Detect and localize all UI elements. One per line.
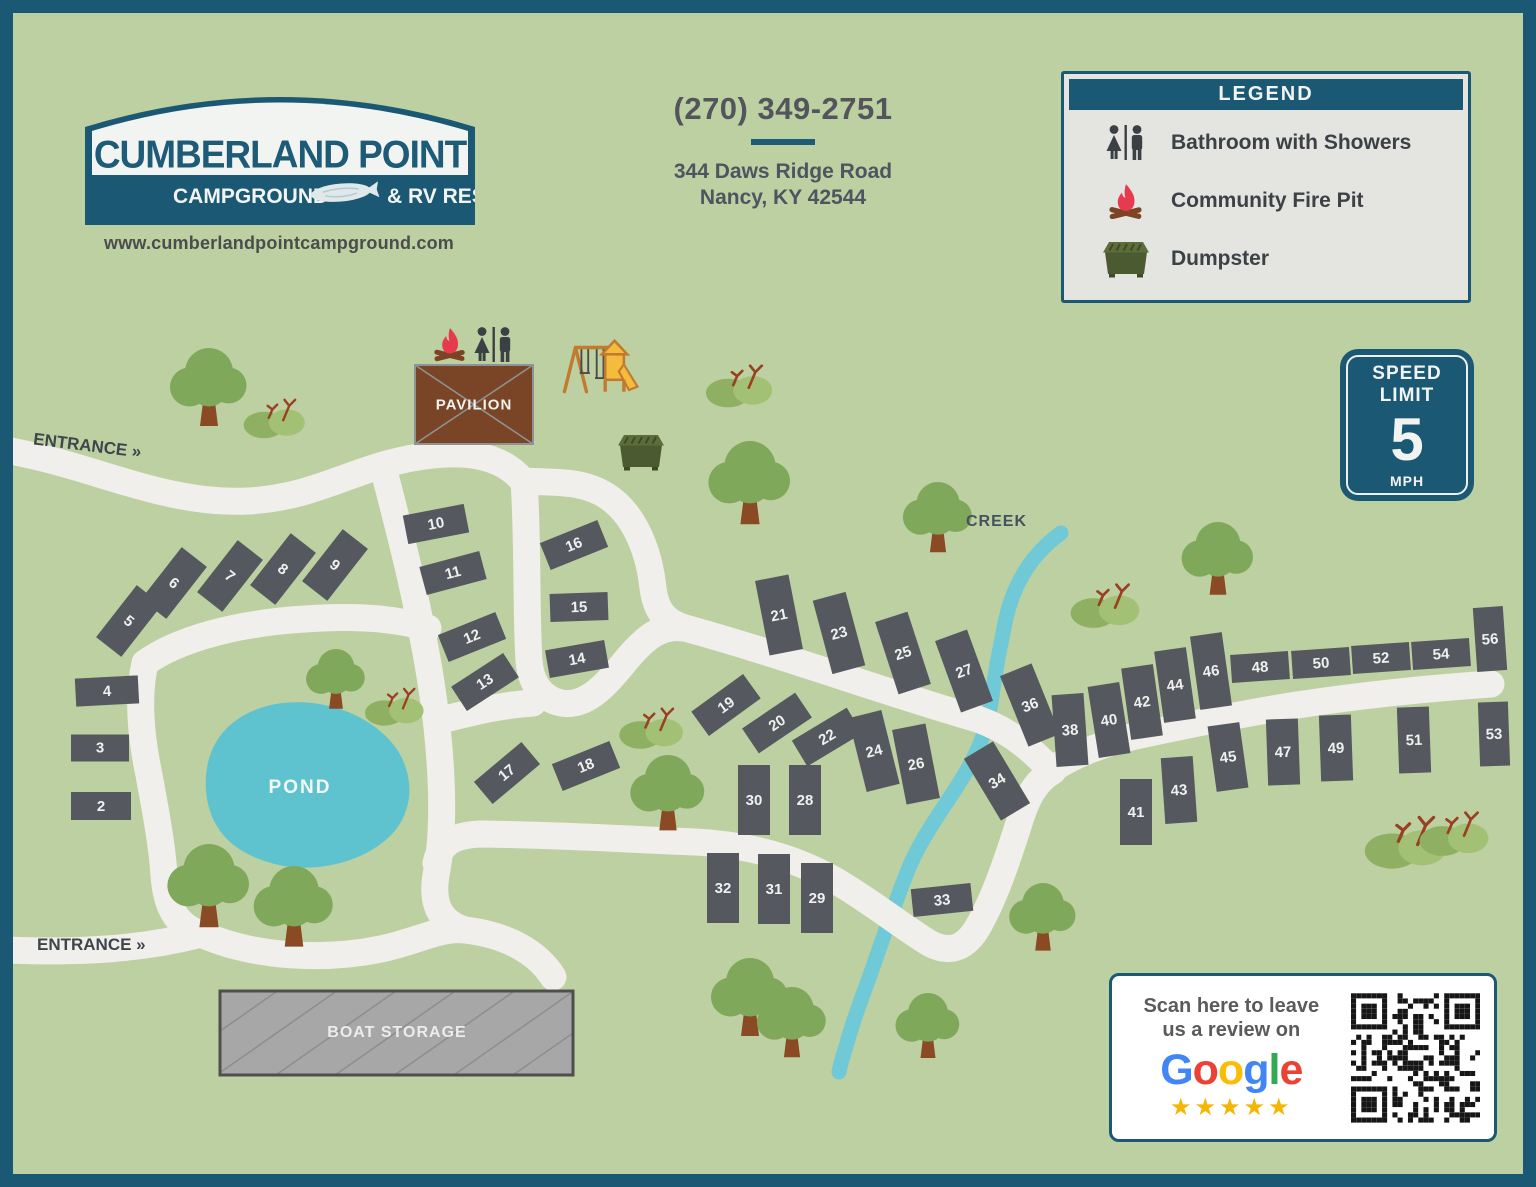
site-marker-31: 31 bbox=[758, 854, 790, 924]
site-marker-47: 47 bbox=[1266, 718, 1300, 785]
site-marker-51: 51 bbox=[1397, 706, 1431, 773]
website-url: www.cumberlandpointcampground.com bbox=[59, 233, 499, 254]
playground-icon bbox=[564, 341, 637, 392]
tree-icon bbox=[1009, 883, 1075, 951]
site-marker-4: 4 bbox=[75, 675, 139, 706]
bush-icon bbox=[365, 689, 424, 726]
tree-icon bbox=[170, 348, 247, 426]
site-marker-56: 56 bbox=[1473, 606, 1507, 672]
site-marker-52: 52 bbox=[1351, 642, 1411, 674]
review-text-line1: Scan here to leave bbox=[1126, 994, 1337, 1018]
google-logo: Google bbox=[1126, 1046, 1337, 1095]
legend-title: LEGEND bbox=[1069, 79, 1463, 110]
restroom-icon bbox=[475, 327, 511, 362]
boat-storage-label: BOAT STORAGE bbox=[327, 1024, 466, 1042]
review-text-line2: us a review on bbox=[1126, 1018, 1337, 1042]
site-marker-29: 29 bbox=[801, 863, 833, 933]
site-marker-30: 30 bbox=[738, 765, 770, 835]
tree-icon bbox=[896, 993, 960, 1058]
five-stars: ★★★★★ bbox=[1126, 1093, 1337, 1122]
pond-label: POND bbox=[269, 777, 332, 799]
legend-item-bathroom: Bathroom with Showers bbox=[1069, 118, 1463, 168]
address-line1: 344 Daws Ridge Road bbox=[613, 159, 953, 185]
creek-label: CREEK bbox=[966, 513, 1027, 531]
legend: LEGEND Bathroom with Showers Community F… bbox=[1061, 71, 1471, 303]
contact-block: (270) 349-2751 344 Daws Ridge Road Nancy… bbox=[613, 91, 953, 211]
restroom-icon bbox=[1095, 124, 1157, 162]
logo-title: CUMBERLAND POINT bbox=[94, 134, 467, 177]
dumpster-icon bbox=[618, 435, 664, 471]
speed-limit-value: 5 bbox=[1390, 409, 1423, 471]
divider bbox=[751, 139, 815, 145]
bush-icon bbox=[706, 366, 772, 408]
campground-map-poster: 2345678910111213141516171819202122232425… bbox=[0, 0, 1536, 1187]
legend-item-firepit: Community Fire Pit bbox=[1069, 176, 1463, 226]
logo: CUMBERLAND POINT CAMPGROUND & RV RESORT bbox=[85, 75, 475, 225]
tree-icon bbox=[903, 482, 972, 552]
site-marker-28: 28 bbox=[789, 765, 821, 835]
tree-icon bbox=[1182, 522, 1253, 595]
site-marker-15: 15 bbox=[550, 592, 609, 622]
site-marker-54: 54 bbox=[1411, 638, 1471, 670]
address-line2: Nancy, KY 42544 bbox=[613, 185, 953, 211]
tree-icon bbox=[254, 866, 333, 947]
site-marker-50: 50 bbox=[1291, 647, 1351, 679]
qr-code bbox=[1351, 991, 1480, 1125]
speed-limit-sign: SPEED LIMIT 5 MPH bbox=[1340, 349, 1474, 501]
site-marker-2: 2 bbox=[71, 792, 131, 820]
site-marker-41: 41 bbox=[1120, 779, 1152, 845]
bush-icon bbox=[1071, 585, 1140, 628]
legend-item-dumpster: Dumpster bbox=[1069, 234, 1463, 284]
phone-number: (270) 349-2751 bbox=[613, 91, 953, 127]
site-marker-43: 43 bbox=[1161, 756, 1198, 824]
site-marker-49: 49 bbox=[1319, 714, 1353, 781]
pavilion-label: PAVILION bbox=[436, 397, 513, 414]
logo-band-right: & RV RESORT bbox=[387, 185, 475, 208]
firepit-icon bbox=[1095, 183, 1157, 219]
site-marker-48: 48 bbox=[1230, 651, 1290, 683]
bush-icon bbox=[244, 400, 305, 438]
google-review-box: Scan here to leave us a review on Google… bbox=[1109, 973, 1497, 1142]
site-marker-53: 53 bbox=[1478, 701, 1510, 766]
site-marker-3: 3 bbox=[71, 735, 129, 762]
site-marker-32: 32 bbox=[707, 853, 739, 923]
tree-icon bbox=[306, 649, 365, 709]
site-marker-38: 38 bbox=[1052, 693, 1089, 767]
entrance-label-bottom: ENTRANCE » bbox=[37, 935, 146, 955]
logo-band-left: CAMPGROUND bbox=[173, 185, 328, 208]
dumpster-icon bbox=[1095, 238, 1157, 280]
tree-icon bbox=[630, 755, 704, 830]
bush-icon bbox=[619, 709, 683, 749]
tree-icon bbox=[708, 441, 790, 524]
firepit-icon bbox=[434, 328, 466, 362]
